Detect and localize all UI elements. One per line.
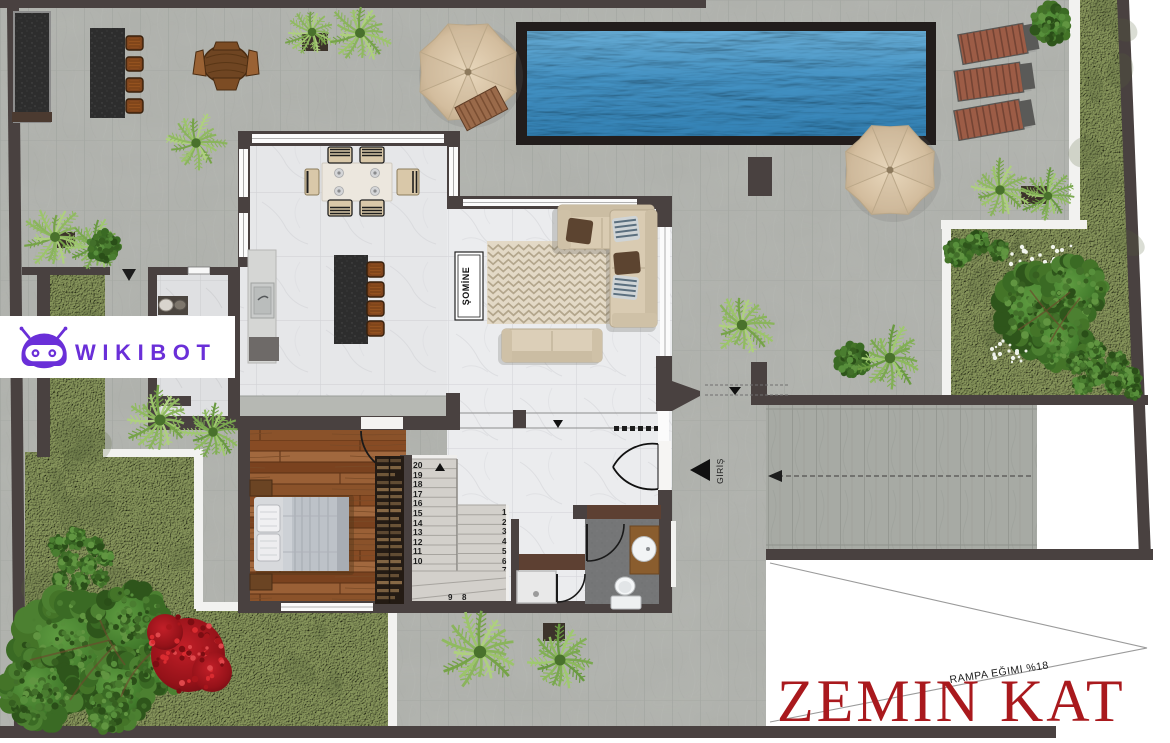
svg-text:10: 10 xyxy=(413,556,423,566)
svg-text:16: 16 xyxy=(413,498,423,508)
svg-text:13: 13 xyxy=(413,527,423,537)
svg-text:GİRİŞ: GİRİŞ xyxy=(715,458,725,484)
svg-text:15: 15 xyxy=(413,508,423,518)
svg-text:18: 18 xyxy=(413,479,423,489)
svg-text:3: 3 xyxy=(502,527,507,536)
svg-text:5: 5 xyxy=(502,547,507,556)
svg-text:ŞOMİNE: ŞOMİNE xyxy=(461,267,471,306)
svg-text:WIKIBOT: WIKIBOT xyxy=(75,340,217,365)
svg-text:20: 20 xyxy=(413,460,423,470)
svg-text:1: 1 xyxy=(502,508,507,517)
svg-text:8: 8 xyxy=(462,593,467,602)
svg-text:ZEMIN KAT: ZEMIN KAT xyxy=(777,668,1126,734)
svg-text:2: 2 xyxy=(502,518,507,527)
svg-text:4: 4 xyxy=(502,537,507,546)
svg-text:11: 11 xyxy=(413,546,422,556)
svg-text:6: 6 xyxy=(502,557,507,566)
svg-text:9: 9 xyxy=(448,593,453,602)
